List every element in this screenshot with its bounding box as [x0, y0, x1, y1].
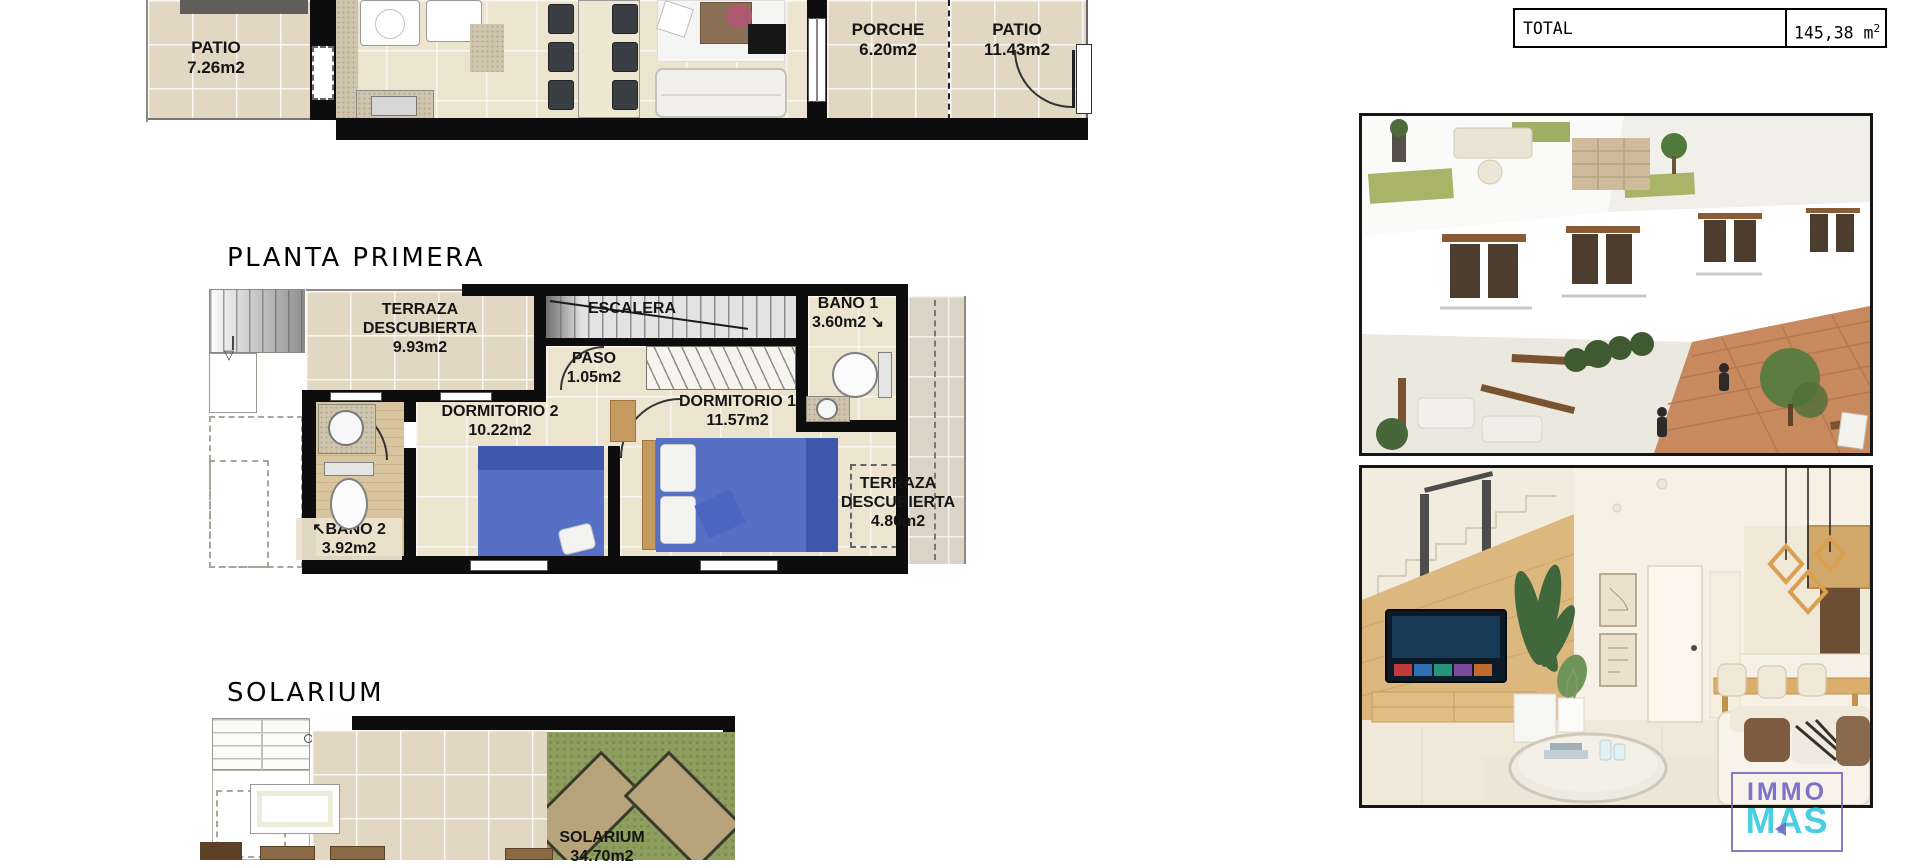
- wall: [352, 716, 735, 730]
- solarium-floor: [312, 730, 547, 860]
- dining-chair: [612, 4, 638, 34]
- window: [700, 560, 778, 571]
- window: [440, 392, 492, 401]
- room-name: PATIO: [156, 38, 276, 58]
- room-name: TERRAZA: [832, 474, 964, 493]
- room-label-patio-left: PATIO 7.26m2: [156, 38, 276, 78]
- appliance-door: [375, 9, 405, 39]
- page: { "titles": { "first_floor": "PLANTA PRI…: [0, 0, 1920, 860]
- room-area: 3.92m2: [296, 539, 402, 558]
- window: [330, 392, 382, 401]
- room-label-bano1: BAÑO 1 3.60m2 ↘: [802, 294, 894, 332]
- room-label-terraza-top: TERRAZA DESCUBIERTA 9.93m2: [340, 300, 500, 357]
- porche-area: [827, 0, 948, 120]
- room-label-porche: PORCHE 6.20m2: [832, 20, 944, 60]
- interior-render-photo: [1359, 465, 1873, 808]
- room-name: SOLARIUM: [540, 828, 664, 847]
- bed-pillow: [660, 496, 696, 544]
- wardrobe: [646, 346, 796, 390]
- bed-pillow: [660, 444, 696, 492]
- room-area: 7.26m2: [156, 58, 276, 78]
- bed-double: [478, 446, 604, 556]
- nightstand: [610, 400, 636, 442]
- stair-down-arrow-icon: ▽: [224, 348, 234, 363]
- bed-blanket-band: [478, 446, 604, 470]
- logo-line-mas: MAS: [1733, 804, 1841, 838]
- room-area: 1.05m2: [550, 368, 638, 387]
- dining-chair: [612, 80, 638, 110]
- toilet-tank: [878, 352, 892, 398]
- solarium-title: SOLARIUM: [227, 678, 384, 708]
- total-label: TOTAL: [1515, 10, 1785, 46]
- tv-app-tiles: [1394, 664, 1492, 676]
- wall: [546, 338, 796, 346]
- washing-machine: [360, 0, 420, 46]
- sink-icon: [328, 410, 364, 446]
- dining-chair: [548, 42, 574, 72]
- door-direction-arrow-icon: ↘: [871, 314, 884, 331]
- dining-chair: [612, 42, 638, 72]
- room-label-dorm2: DORMITORIO 2 10.22m2: [430, 402, 570, 440]
- wall: [534, 296, 546, 396]
- room-label-solarium: SOLARIUM 34.70m2: [540, 828, 664, 866]
- room-label-paso: PASO 1.05m2: [550, 349, 638, 387]
- room-area: 9.93m2: [340, 338, 500, 357]
- window: [470, 560, 548, 571]
- dining-chair: [548, 4, 574, 34]
- sofa: [655, 68, 787, 118]
- room-name: DORMITORIO 2: [430, 402, 570, 421]
- wood-stool: [200, 842, 242, 860]
- wood-chair: [260, 846, 315, 860]
- total-area-table: TOTAL 145,38 m2: [1513, 8, 1887, 48]
- window-mullion: [816, 18, 818, 102]
- sink-icon: [371, 96, 417, 116]
- roof-outline-dashed: [209, 460, 269, 568]
- room-area: 11.57m2: [665, 411, 810, 430]
- door-direction-arrow-icon: ↖: [312, 521, 325, 538]
- exterior-render-photo: [1359, 113, 1873, 456]
- toilet-tank: [324, 462, 374, 476]
- kitchen-counter: [336, 0, 358, 120]
- toilet-icon: [330, 478, 368, 530]
- room-area: 3.60m2 ↘: [802, 313, 894, 332]
- room-name: DESCUBIERTA: [832, 493, 964, 512]
- exterior-render-illustration: [1362, 116, 1870, 453]
- stair-divider: [261, 719, 263, 771]
- wall: [404, 402, 416, 422]
- immomas-logo: IMMO MAS: [1731, 772, 1843, 852]
- room-label-dorm1: DORMITORIO 1 11.57m2: [665, 392, 810, 430]
- sofa-seam: [661, 94, 781, 96]
- dashed-door-opening: [312, 46, 334, 100]
- sink-icon: [816, 398, 838, 420]
- room-name: DESCUBIERTA: [340, 319, 500, 338]
- room-area: 34.70m2: [540, 847, 664, 866]
- room-area: 6.20m2: [832, 40, 944, 60]
- wall: [336, 118, 1088, 140]
- room-name: DORMITORIO 1: [665, 392, 810, 411]
- bed-pillow: [557, 522, 596, 555]
- sink-unit: [356, 90, 434, 120]
- interior-render-illustration: [1362, 468, 1870, 805]
- kitchen-island: [470, 24, 504, 72]
- door-frame: [1076, 44, 1092, 114]
- floor-mat: [748, 24, 786, 54]
- bed-double: [642, 436, 838, 554]
- total-value: 145,38 m2: [1785, 10, 1885, 46]
- ground-floor-plan: PATIO 7.26m2 PORCHE 6.20m2 PATIO 11.43m2: [0, 0, 1100, 145]
- room-area: 4.80m2: [832, 512, 964, 531]
- dining-chair: [548, 80, 574, 110]
- solarium-stairs: [212, 718, 310, 770]
- wood-chair: [330, 846, 385, 860]
- table-inner-frame: [257, 791, 333, 827]
- toilet-icon: [832, 352, 878, 398]
- room-name: PATIO: [952, 20, 1082, 40]
- kitchen-counter-top: [180, 0, 308, 14]
- first-floor-title: PLANTA PRIMERA: [227, 243, 485, 273]
- exterior-stairs: [209, 289, 305, 353]
- room-name: BAÑO 1: [802, 294, 894, 313]
- room-area: 10.22m2: [430, 421, 570, 440]
- room-label-terraza-right: TERRAZA DESCUBIERTA 4.80m2: [832, 474, 964, 531]
- room-name: TERRAZA: [340, 300, 500, 319]
- bed-headboard: [642, 440, 656, 550]
- room-label-escalera: ESCALERA: [588, 299, 708, 318]
- door-leaf: [1072, 50, 1075, 108]
- room-name: PORCHE: [832, 20, 944, 40]
- wall: [608, 446, 620, 556]
- outdoor-table: [250, 784, 340, 834]
- wall: [404, 448, 416, 574]
- dining-chairs: [1718, 664, 1826, 698]
- room-name: PASO: [550, 349, 638, 368]
- logo-arrow-icon: [1775, 822, 1786, 836]
